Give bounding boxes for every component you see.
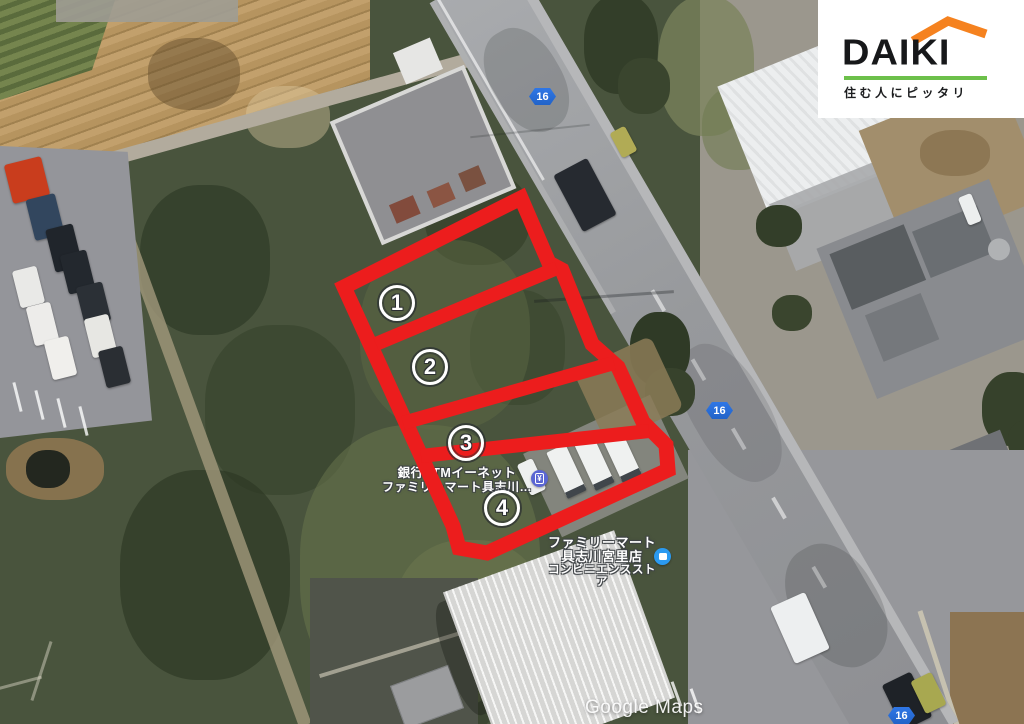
familymart-label-line1: ファミリーマート [544, 536, 660, 550]
satellite-map-canvas[interactable]: 銀行ATMイーネット ファミリーマート具志川… ¥ ファミリーマート 具志川宮里… [0, 0, 1024, 724]
roadside-tree [772, 295, 812, 331]
bank-atm-label[interactable]: 銀行ATMイーネット ファミリーマート具志川… [378, 467, 536, 493]
greenhouse-roof [56, 0, 238, 22]
farm-dirt-patch [148, 38, 240, 110]
atm-icon[interactable]: ¥ [531, 470, 548, 487]
plot-marker-4: 4 [484, 490, 520, 526]
atm-icon-glyph: ¥ [535, 473, 543, 484]
brush-texture [120, 470, 290, 680]
logo-green-bar [844, 76, 987, 80]
dirt-lot-patch [920, 130, 990, 176]
plot-marker-2: 2 [412, 349, 448, 385]
convenience-store-icon[interactable] [654, 548, 671, 565]
plot-marker-3: 3 [448, 425, 484, 461]
fallen-pole [30, 641, 52, 701]
building-roof [912, 205, 996, 278]
daiki-brand-text: DAIKI [842, 33, 1002, 74]
roof-rust-stain [458, 165, 486, 192]
daiki-tagline: 住む人にピッタリ [844, 84, 1014, 101]
lane-dash [771, 497, 787, 520]
roof-rust-stain [389, 195, 421, 224]
roadside-tree [756, 205, 802, 247]
dirt-yard-corner [950, 612, 1024, 724]
roof-rust-stain [427, 182, 456, 208]
plot-marker-1: 1 [379, 285, 415, 321]
bank-atm-label-line1: 銀行ATMイーネット [378, 467, 536, 481]
daiki-logo-block: DAIKI 住む人にピッタリ [818, 0, 1024, 118]
google-maps-watermark: Google Maps [585, 697, 704, 719]
tree-cluster [618, 58, 670, 114]
familymart-category-label: コンビニエンスストア [544, 564, 660, 589]
building-roof [865, 293, 939, 362]
well-structure [26, 450, 70, 488]
grass-field [360, 240, 530, 430]
familymart-label-line2: 具志川宮里店 [544, 550, 660, 564]
familymart-label[interactable]: ファミリーマート 具志川宮里店 コンビニエンスストア [544, 536, 660, 589]
bank-atm-label-line2: ファミリーマート具志川… [378, 481, 536, 494]
shopping-bag-glyph [659, 553, 667, 560]
